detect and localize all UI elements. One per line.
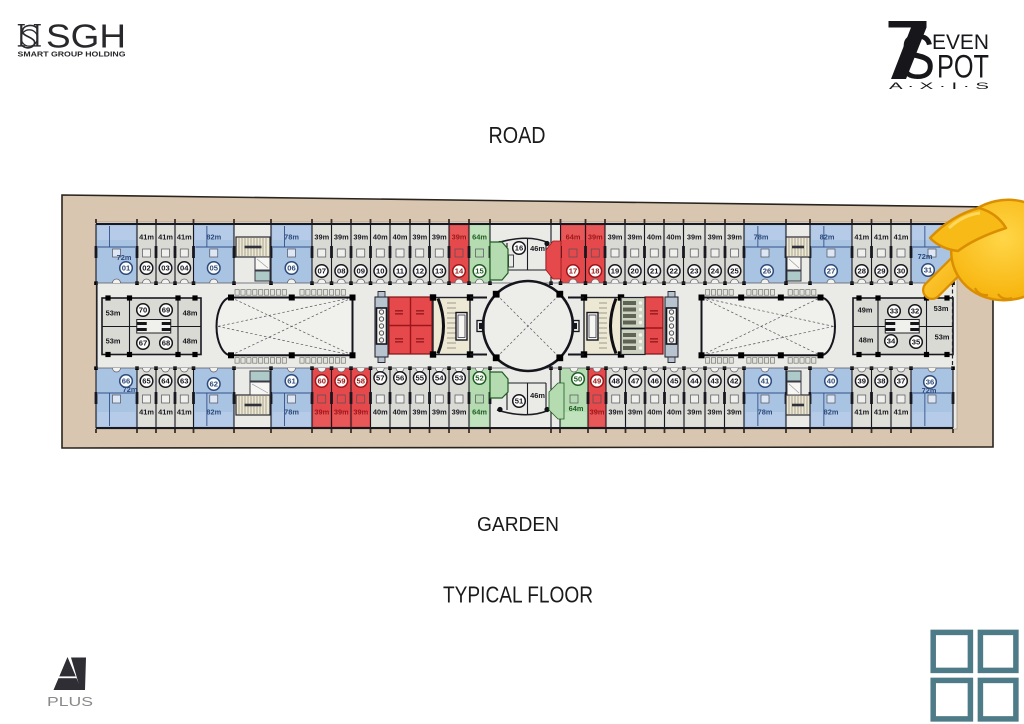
svg-text:48m: 48m — [183, 309, 198, 318]
svg-text:19: 19 — [611, 267, 619, 276]
svg-text:39m: 39m — [334, 408, 349, 417]
svg-text:39m: 39m — [412, 408, 427, 417]
svg-text:41m: 41m — [177, 408, 192, 417]
svg-text:70: 70 — [139, 306, 147, 315]
svg-text:78m: 78m — [284, 233, 299, 242]
svg-text:48m: 48m — [859, 336, 874, 345]
svg-text:64m: 64m — [472, 408, 487, 417]
svg-text:52: 52 — [475, 374, 483, 383]
svg-text:44: 44 — [690, 377, 699, 386]
svg-text:82m: 82m — [206, 233, 221, 242]
svg-text:POT: POT — [937, 49, 989, 85]
svg-text:39: 39 — [858, 377, 866, 386]
svg-text:39m: 39m — [687, 408, 702, 417]
svg-text:09: 09 — [357, 267, 365, 276]
svg-text:26: 26 — [763, 267, 771, 276]
svg-text:39m: 39m — [708, 233, 723, 242]
svg-text:21: 21 — [650, 267, 659, 276]
svg-text:07: 07 — [318, 267, 326, 276]
svg-text:05: 05 — [210, 264, 219, 273]
svg-text:39m: 39m — [608, 408, 623, 417]
svg-text:82m: 82m — [824, 408, 839, 417]
svg-text:PLUS: PLUS — [47, 694, 93, 709]
svg-text:39m: 39m — [314, 233, 329, 242]
svg-text:62: 62 — [210, 380, 218, 389]
svg-text:32: 32 — [911, 307, 919, 316]
svg-text:28: 28 — [858, 267, 866, 276]
svg-text:49m: 49m — [858, 306, 873, 315]
svg-text:59: 59 — [337, 377, 345, 386]
svg-text:41m: 41m — [158, 233, 173, 242]
svg-text:GARDEN: GARDEN — [477, 513, 559, 536]
svg-text:41m: 41m — [894, 233, 909, 242]
svg-text:18: 18 — [591, 267, 599, 276]
svg-text:38: 38 — [877, 377, 885, 386]
svg-text:61: 61 — [287, 377, 296, 386]
svg-text:11: 11 — [396, 267, 405, 276]
svg-text:39m: 39m — [628, 408, 643, 417]
svg-text:SMART GROUP HOLDING: SMART GROUP HOLDING — [18, 50, 126, 59]
svg-text:24: 24 — [711, 267, 720, 276]
svg-text:17: 17 — [569, 267, 577, 276]
svg-text:82m: 82m — [206, 408, 221, 417]
svg-text:39m: 39m — [353, 408, 368, 417]
svg-text:49: 49 — [593, 377, 601, 386]
svg-text:40m: 40m — [393, 408, 408, 417]
svg-text:06: 06 — [287, 264, 295, 273]
svg-text:ROAD: ROAD — [489, 122, 546, 148]
svg-text:40m: 40m — [647, 233, 662, 242]
svg-text:A · X · I · S: A · X · I · S — [889, 81, 989, 92]
svg-text:27: 27 — [827, 267, 835, 276]
svg-text:20: 20 — [631, 267, 639, 276]
svg-text:53m: 53m — [106, 337, 121, 346]
svg-text:TYPICAL FLOOR: TYPICAL FLOOR — [443, 582, 593, 608]
svg-text:39m: 39m — [432, 408, 447, 417]
svg-text:82m: 82m — [820, 233, 835, 242]
svg-text:30: 30 — [897, 267, 905, 276]
svg-text:63: 63 — [180, 377, 188, 386]
svg-text:41: 41 — [761, 377, 770, 386]
svg-text:39m: 39m — [627, 233, 642, 242]
svg-text:33: 33 — [890, 307, 898, 316]
svg-text:46: 46 — [651, 377, 659, 386]
svg-text:72m: 72m — [918, 252, 933, 261]
svg-text:64: 64 — [161, 377, 170, 386]
svg-text:10: 10 — [376, 267, 384, 276]
svg-text:35: 35 — [912, 338, 921, 347]
svg-text:54: 54 — [435, 374, 444, 383]
svg-text:51: 51 — [515, 397, 524, 406]
svg-text:39m: 39m — [432, 233, 447, 242]
svg-text:02: 02 — [142, 264, 150, 273]
svg-text:39m: 39m — [412, 233, 427, 242]
svg-text:56: 56 — [396, 374, 404, 383]
svg-text:64m: 64m — [472, 233, 487, 242]
svg-text:39m: 39m — [452, 408, 467, 417]
svg-text:41m: 41m — [854, 408, 869, 417]
svg-text:23: 23 — [690, 267, 698, 276]
svg-text:39m: 39m — [314, 408, 329, 417]
svg-text:03: 03 — [161, 264, 169, 273]
svg-text:50: 50 — [574, 375, 582, 384]
svg-text:55: 55 — [416, 374, 425, 383]
svg-text:01: 01 — [122, 264, 131, 273]
svg-text:39m: 39m — [727, 233, 742, 242]
svg-text:39m: 39m — [334, 233, 349, 242]
svg-text:12: 12 — [416, 267, 424, 276]
svg-text:65: 65 — [142, 377, 151, 386]
svg-text:13: 13 — [435, 267, 443, 276]
svg-text:45: 45 — [670, 377, 679, 386]
svg-text:39m: 39m — [727, 408, 742, 417]
svg-text:64m: 64m — [569, 404, 584, 413]
svg-text:29: 29 — [877, 267, 885, 276]
svg-text:46m: 46m — [530, 244, 545, 253]
svg-text:15: 15 — [475, 267, 484, 276]
svg-text:72m: 72m — [922, 386, 937, 395]
svg-text:34: 34 — [887, 337, 896, 346]
svg-text:16: 16 — [515, 244, 523, 253]
svg-text:64m: 64m — [566, 233, 581, 242]
svg-text:39m: 39m — [707, 408, 722, 417]
svg-text:39m: 39m — [353, 233, 368, 242]
svg-text:39m: 39m — [588, 233, 603, 242]
svg-text:43: 43 — [711, 377, 719, 386]
svg-text:39m: 39m — [687, 233, 702, 242]
svg-text:40m: 40m — [647, 408, 662, 417]
svg-text:78m: 78m — [754, 233, 769, 242]
svg-text:22: 22 — [670, 267, 678, 276]
svg-text:31: 31 — [924, 266, 933, 275]
svg-text:53: 53 — [455, 374, 463, 383]
svg-text:72m: 72m — [123, 385, 138, 394]
svg-text:78m: 78m — [758, 408, 773, 417]
svg-text:41m: 41m — [139, 233, 154, 242]
svg-text:67: 67 — [139, 339, 147, 348]
svg-text:41m: 41m — [139, 408, 154, 417]
svg-text:41m: 41m — [854, 233, 869, 242]
svg-text:14: 14 — [455, 267, 464, 276]
svg-text:04: 04 — [180, 264, 189, 273]
svg-text:39m: 39m — [590, 408, 605, 417]
svg-text:40m: 40m — [666, 233, 681, 242]
svg-text:41m: 41m — [874, 408, 889, 417]
svg-text:72m: 72m — [117, 253, 132, 262]
svg-text:41m: 41m — [177, 233, 192, 242]
svg-text:48m: 48m — [183, 337, 198, 346]
svg-text:53m: 53m — [934, 304, 949, 313]
svg-text:25: 25 — [730, 267, 739, 276]
svg-text:48: 48 — [612, 377, 620, 386]
svg-text:40m: 40m — [667, 408, 682, 417]
svg-text:69: 69 — [162, 306, 170, 315]
svg-text:08: 08 — [337, 267, 345, 276]
svg-text:41m: 41m — [874, 233, 889, 242]
svg-text:53m: 53m — [935, 333, 950, 342]
svg-text:41m: 41m — [158, 408, 173, 417]
svg-text:53m: 53m — [106, 309, 121, 318]
svg-text:46m: 46m — [530, 391, 545, 400]
svg-text:40m: 40m — [373, 408, 388, 417]
svg-text:41m: 41m — [894, 408, 909, 417]
svg-text:40: 40 — [827, 377, 835, 386]
svg-text:39m: 39m — [452, 233, 467, 242]
svg-text:39m: 39m — [608, 233, 623, 242]
svg-text:42: 42 — [730, 377, 738, 386]
svg-text:57: 57 — [376, 374, 384, 383]
svg-text:58: 58 — [357, 377, 365, 386]
svg-text:78m: 78m — [284, 408, 299, 417]
svg-text:40m: 40m — [393, 233, 408, 242]
svg-text:68: 68 — [162, 339, 170, 348]
svg-text:47: 47 — [631, 377, 639, 386]
svg-text:60: 60 — [318, 377, 326, 386]
svg-text:37: 37 — [897, 377, 905, 386]
svg-text:40m: 40m — [373, 233, 388, 242]
